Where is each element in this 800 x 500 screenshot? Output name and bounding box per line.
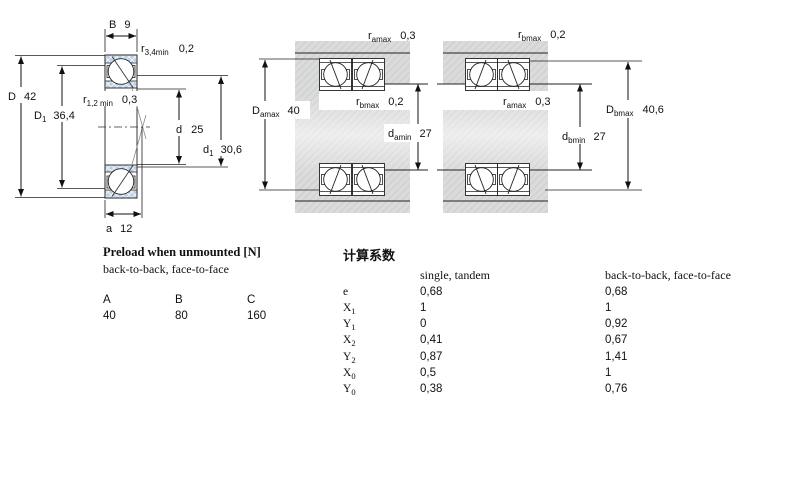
factor-value-paired: 0,76	[605, 383, 627, 395]
dim-Dbmax: Dbmax40,6	[529, 61, 668, 190]
ball	[108, 169, 134, 195]
factor-row-label: Y0	[343, 383, 356, 397]
preload-value-b: 80	[175, 310, 188, 322]
factor-value-paired: 1	[605, 302, 611, 314]
factor-row-label: Y2	[343, 351, 356, 365]
dim-label: D	[34, 110, 42, 122]
svg-text:a12: a12	[106, 223, 132, 235]
label-r34min: r3,4min0,2	[141, 43, 194, 57]
bearing-cross-section: B9 r3,4min0,2 D42 D136,4 r1,2 min0,3	[4, 19, 243, 235]
factors-col-single: single, tandem	[420, 268, 490, 283]
factor-row-label: Y1	[343, 318, 356, 332]
factor-value-paired: 0,92	[605, 318, 627, 330]
dim-dbmin: dbmin27	[558, 84, 612, 170]
label-r12min: r1,2 min0,3	[80, 91, 140, 108]
fit-diagram-face-to-face: Dbmax40,6 dbmin27 rbmax0,2 ramax0,3	[437, 29, 668, 213]
label-rbmax: rbmax0,2	[518, 29, 566, 43]
dim-D: D42	[4, 56, 105, 198]
dim-a: a12	[105, 200, 141, 235]
preload-col-a: A	[103, 294, 111, 306]
svg-text:B9: B9	[109, 19, 130, 31]
factor-value-paired: 1	[605, 367, 611, 379]
factor-value-single: 0,38	[420, 383, 442, 395]
preload-col-c: C	[247, 294, 255, 306]
bearing-drawings: Damax40 damin27 ramax0,3 rbmax0,2	[0, 0, 800, 244]
factor-row-label: X0	[343, 367, 356, 381]
dim-label: D	[606, 104, 614, 116]
factor-row-label: e	[343, 286, 348, 300]
factor-value-single: 0,5	[420, 367, 436, 379]
label-rbmax: rbmax0,2	[352, 93, 410, 110]
ball	[108, 59, 134, 85]
factor-value-single: 1	[420, 302, 426, 314]
factor-value-paired: 0,67	[605, 334, 627, 346]
dim-label: d	[176, 124, 182, 136]
factor-value-single: 0,87	[420, 351, 442, 363]
factors-title: 计算系数	[343, 245, 395, 264]
factor-value-paired: 1,41	[605, 351, 627, 363]
factor-row-label: X1	[343, 302, 356, 316]
factor-value-single: 0	[420, 318, 426, 330]
dim-D1: D136,4	[30, 66, 105, 189]
dim-B: B9	[105, 19, 137, 52]
preload-title: Preload when unmounted [N]	[103, 245, 261, 260]
preload-value-a: 40	[103, 310, 116, 322]
factors-col-paired: back-to-back, face-to-face	[605, 268, 731, 283]
dim-label: B	[109, 19, 116, 31]
preload-col-b: B	[175, 294, 183, 306]
factor-value-paired: 0,68	[605, 286, 627, 298]
svg-text:d130,6: d130,6	[203, 144, 242, 158]
bearing-datasheet: Damax40 damin27 ramax0,3 rbmax0,2	[0, 0, 800, 500]
dim-label: D	[8, 91, 16, 103]
fit-diagram-back-to-back: Damax40 damin27 ramax0,3 rbmax0,2	[248, 30, 442, 213]
preload-value-c: 160	[247, 310, 266, 322]
preload-subtitle: back-to-back, face-to-face	[103, 262, 229, 277]
dim-label: a	[106, 223, 113, 235]
dim-label: D	[252, 105, 260, 117]
factor-value-single: 0,68	[420, 286, 442, 298]
factor-row-label: X2	[343, 334, 356, 348]
factor-value-single: 0,41	[420, 334, 442, 346]
label-ramax: ramax0,3	[500, 93, 551, 110]
svg-text:D136,4: D136,4	[34, 110, 75, 124]
